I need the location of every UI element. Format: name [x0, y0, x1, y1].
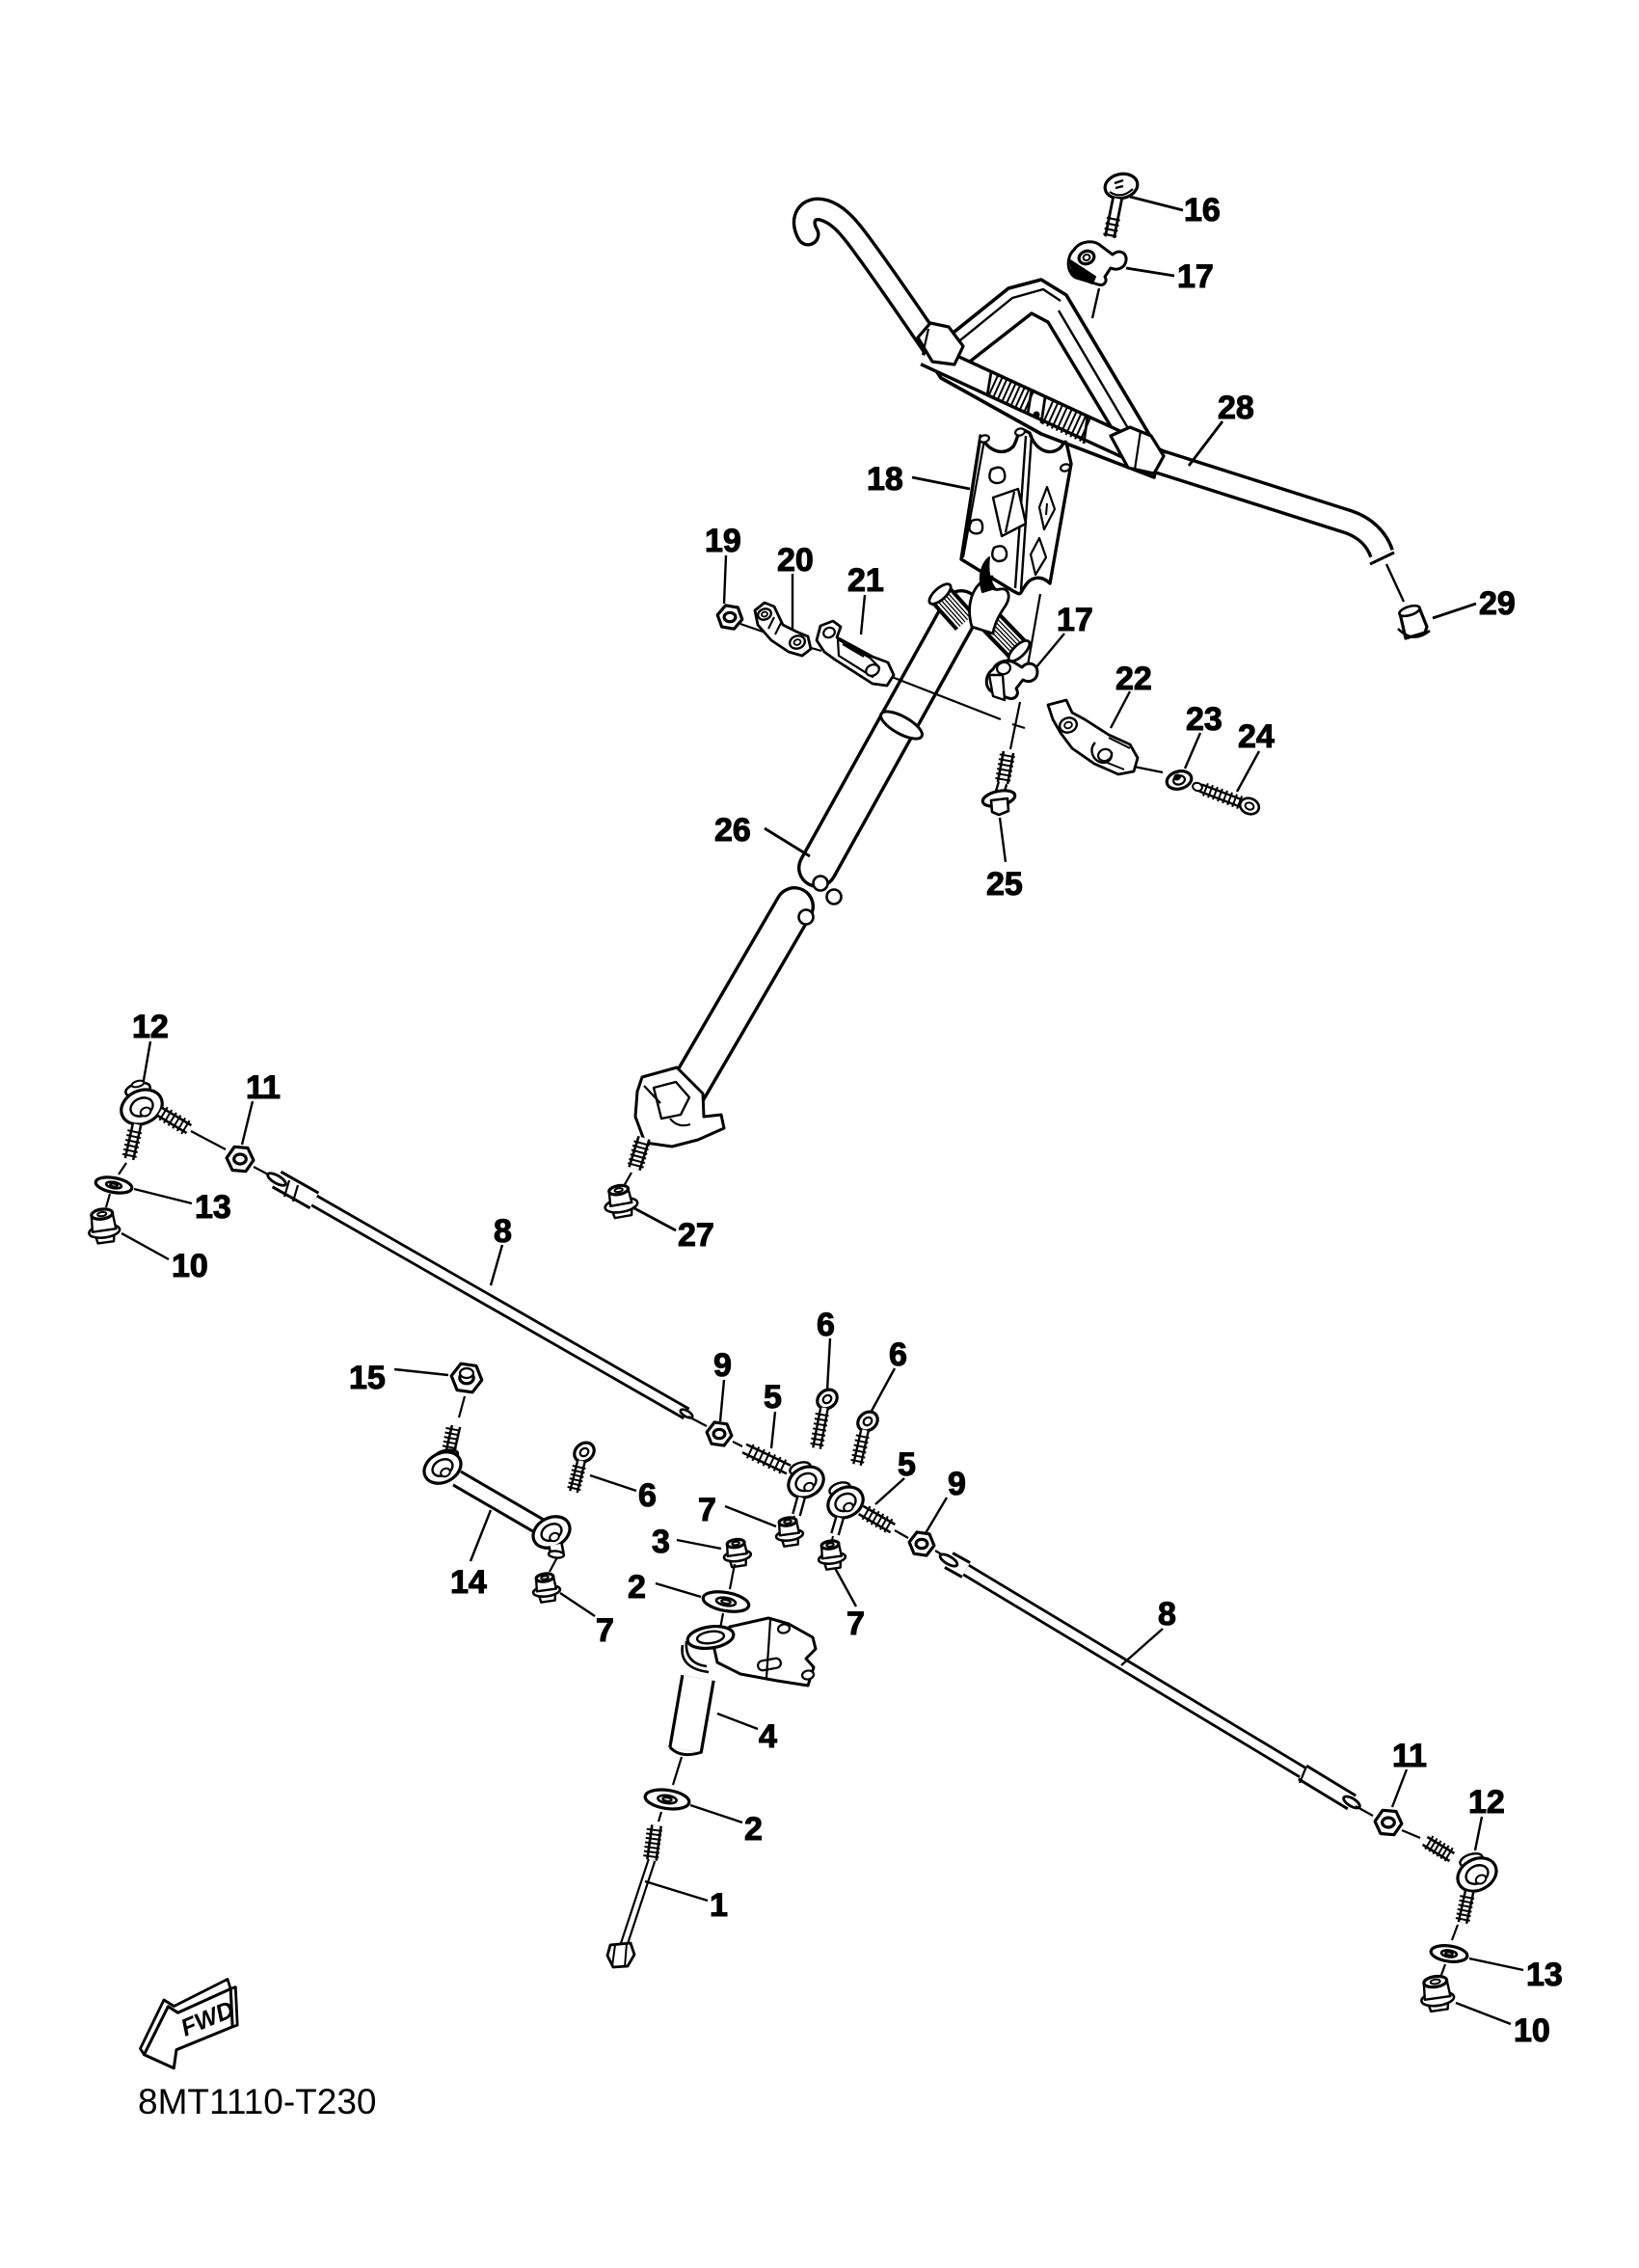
svg-text:11: 11 [246, 1069, 281, 1106]
svg-text:29: 29 [1479, 585, 1516, 622]
svg-text:5: 5 [898, 1446, 916, 1483]
svg-text:10: 10 [1514, 2012, 1550, 2049]
svg-text:5: 5 [764, 1379, 782, 1416]
svg-text:26: 26 [714, 812, 751, 849]
svg-text:22: 22 [1115, 661, 1152, 697]
svg-text:7: 7 [698, 1492, 716, 1528]
svg-text:2: 2 [744, 1811, 763, 1848]
svg-text:7: 7 [596, 1612, 614, 1649]
svg-text:10: 10 [172, 1248, 208, 1284]
svg-text:4: 4 [759, 1718, 777, 1755]
svg-text:9: 9 [948, 1466, 966, 1502]
svg-text:15: 15 [349, 1360, 386, 1396]
svg-text:13: 13 [195, 1189, 231, 1226]
svg-text:13: 13 [1526, 1957, 1563, 1993]
svg-text:14: 14 [450, 1564, 487, 1601]
svg-text:9: 9 [713, 1347, 732, 1384]
svg-text:2: 2 [628, 1569, 646, 1606]
svg-text:6: 6 [889, 1336, 907, 1373]
svg-text:6: 6 [817, 1307, 835, 1343]
svg-text:21: 21 [847, 562, 884, 599]
svg-text:6: 6 [638, 1477, 657, 1514]
svg-text:23: 23 [1186, 701, 1223, 738]
svg-text:8MT1110-T230: 8MT1110-T230 [138, 2082, 376, 2121]
svg-text:12: 12 [1468, 1784, 1505, 1821]
svg-text:8: 8 [1158, 1596, 1176, 1633]
svg-text:3: 3 [652, 1524, 670, 1560]
svg-text:25: 25 [986, 866, 1023, 903]
svg-text:12: 12 [132, 1009, 169, 1045]
svg-text:24: 24 [1238, 718, 1275, 755]
svg-text:17: 17 [1057, 602, 1093, 638]
svg-text:17: 17 [1177, 258, 1214, 295]
svg-text:1: 1 [710, 1887, 728, 1924]
svg-text:8: 8 [494, 1213, 512, 1250]
svg-text:7: 7 [846, 1606, 865, 1642]
svg-text:20: 20 [777, 542, 814, 579]
svg-text:27: 27 [678, 1217, 714, 1254]
svg-text:16: 16 [1184, 192, 1221, 229]
svg-text:28: 28 [1218, 390, 1254, 426]
svg-text:11: 11 [1392, 1738, 1427, 1774]
svg-text:19: 19 [705, 523, 741, 559]
svg-text:18: 18 [867, 461, 903, 498]
